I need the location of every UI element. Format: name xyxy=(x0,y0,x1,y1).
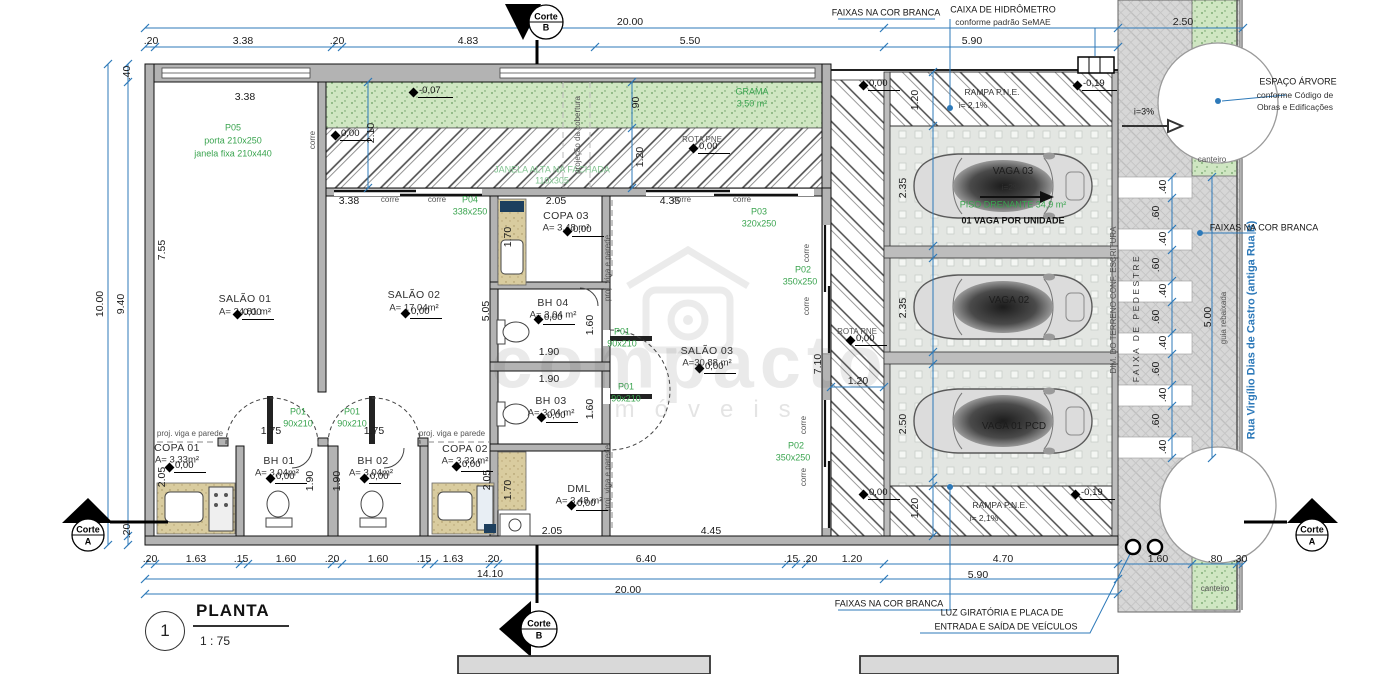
rota-pne-strip xyxy=(831,80,884,536)
ramp-top xyxy=(890,72,1112,126)
drawing-scale: 1 : 75 xyxy=(200,634,230,648)
sidewalk xyxy=(1118,0,1278,612)
architectural-plan-sheet: 20.00.203.38.204.835.505.902.50.4010.009… xyxy=(0,0,1400,674)
section-marker-corte-b-top xyxy=(505,4,563,64)
tree-top xyxy=(1158,43,1278,163)
next-drawing-edge xyxy=(458,656,1118,674)
watermark-text: compacto xyxy=(491,320,889,405)
water-meter-box xyxy=(1078,57,1114,73)
section-marker-corte-b-bottom xyxy=(499,545,557,657)
watermark-subtext: imóveis xyxy=(589,396,810,424)
tree-bottom xyxy=(1160,447,1276,563)
title-divider xyxy=(193,625,289,627)
grass-area xyxy=(326,82,822,128)
ramp-bottom xyxy=(890,486,1112,536)
front-walkway xyxy=(326,128,822,188)
car-vaga-01-pcd xyxy=(914,388,1092,455)
car-vaga-03 xyxy=(914,153,1092,220)
drawing-title: PLANTA xyxy=(196,601,270,621)
car-vaga-02 xyxy=(914,274,1092,341)
drawing-number: 1 xyxy=(145,611,185,651)
